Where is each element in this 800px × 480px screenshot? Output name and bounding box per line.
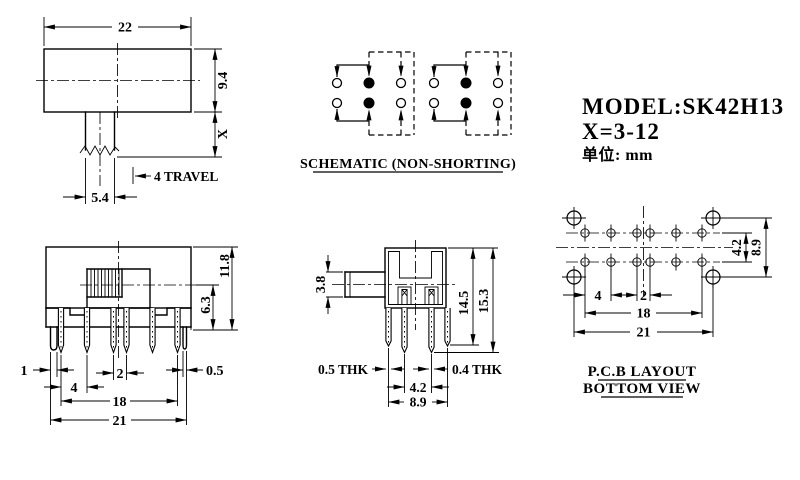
contact-terminal	[333, 99, 342, 108]
pcb-title-line1: P.C.B LAYOUT	[588, 364, 697, 380]
front-right-leg-dim: 0.5	[206, 364, 224, 379]
common-terminal	[461, 78, 471, 88]
contact-terminal	[397, 79, 406, 88]
schematic-view: SCHEMATIC (NON-SHORTING)	[300, 52, 516, 172]
right-mounting-leg	[183, 327, 187, 349]
pin	[124, 308, 129, 353]
top-view-width-dim: 22	[118, 21, 132, 36]
front-center-pitch-dim: 2	[117, 367, 124, 382]
side-pins	[386, 308, 450, 353]
pcb-pad-span-dim: 18	[637, 307, 651, 322]
top-view-height-dim: 9.4	[216, 72, 231, 90]
pin	[429, 308, 434, 353]
common-terminal	[461, 98, 471, 108]
front-overall-height-dim: 11.8	[218, 254, 233, 278]
front-view: 6.3 11.8 1 0.5 2 4 18 21	[21, 241, 239, 429]
pin	[150, 308, 155, 353]
top-view: 22 9.4 X 5.4 4 TRAVEL	[36, 17, 231, 206]
side-outer-gap-dim: 8.9	[410, 395, 427, 410]
pin	[84, 308, 89, 353]
contact-terminal	[430, 99, 439, 108]
left-mounting-leg	[51, 327, 58, 350]
side-knob-height-dim: 3.8	[314, 276, 329, 294]
side-view: 3.8 14.5 15.3 0.5 THK 0.4 THK 4.2 8.9	[314, 240, 503, 410]
pcb-title-line2: BOTTOM VIEW	[583, 381, 701, 397]
pcb-row-gap-dim: 4.2	[729, 239, 744, 256]
pcb-layout-view: 4.2 8.9 4 2 18 21 P.C.B LAYOUT BOTTOM VI…	[556, 206, 772, 397]
front-pin-pitch-dim: 4	[71, 381, 78, 396]
pcb-hole-span-dim: 21	[637, 326, 651, 341]
schematic-title: SCHEMATIC (NON-SHORTING)	[300, 157, 516, 172]
pcb-center-pitch-dim: 2	[640, 289, 647, 304]
pin	[111, 308, 116, 353]
x-range: X=3-12	[582, 119, 660, 144]
side-center-gap-dim: 4.2	[410, 380, 427, 395]
travel-label: 4 TRAVEL	[154, 169, 218, 184]
contact-terminal	[494, 99, 503, 108]
drawing-canvas: 22 9.4 X 5.4 4 TRAVEL	[0, 0, 800, 480]
unit-label: 单位: mm	[582, 145, 653, 164]
model-number: MODEL:SK42H13	[582, 94, 784, 119]
common-terminal	[364, 98, 374, 108]
contact-terminal	[333, 79, 342, 88]
schematic-pole-2	[430, 52, 512, 135]
top-view-shaft-dim: X	[216, 129, 231, 139]
pin	[175, 308, 180, 353]
side-pin-length-dim: 14.5	[457, 291, 472, 316]
front-body-height-dim: 6.3	[199, 296, 214, 314]
pin	[58, 308, 63, 353]
pcb-hole-gap-dim: 8.9	[749, 239, 764, 256]
pin	[402, 308, 407, 353]
front-left-leg-dim: 1	[21, 364, 28, 379]
schematic-pole-1	[333, 52, 415, 135]
contact-terminal	[494, 79, 503, 88]
title-block: MODEL:SK42H13 X=3-12 单位: mm	[582, 94, 784, 164]
pcb-pad-pitch-dim: 4	[595, 289, 602, 304]
top-view-stem-dim: 5.4	[91, 191, 109, 206]
front-leg-span-dim: 21	[113, 414, 127, 429]
knob-serrations	[91, 269, 119, 297]
technical-drawing-page: 22 9.4 X 5.4 4 TRAVEL	[0, 0, 800, 480]
thickness-right-label: 0.4 THK	[452, 362, 503, 377]
contact-terminal	[430, 79, 439, 88]
common-terminal	[364, 78, 374, 88]
side-overall-length-dim: 15.3	[477, 289, 492, 314]
front-pin-span-dim: 18	[113, 395, 127, 410]
contact-terminal	[397, 99, 406, 108]
thickness-left-label: 0.5 THK	[318, 362, 369, 377]
